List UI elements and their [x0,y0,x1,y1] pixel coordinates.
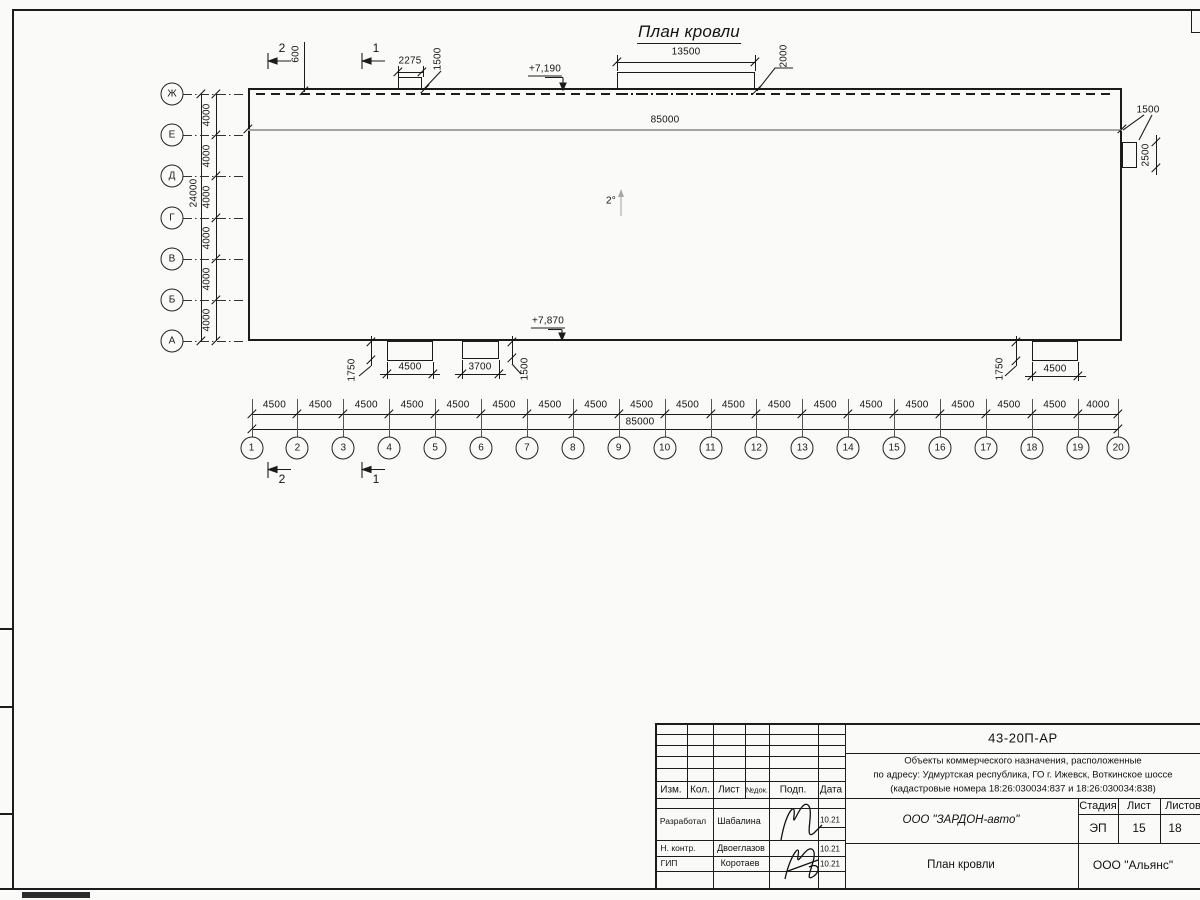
line [894,399,895,437]
row-spacing-dim: 4000 [202,185,213,208]
titleblock-name-gip: Коротаев [721,858,760,868]
titleblock-header-list: Лист [718,785,740,796]
titleblock-sheets-value: 18 [1168,821,1181,835]
line [745,723,746,798]
column-spacing-dim: 4500 [355,399,378,410]
column-axis-bubble: 12 [745,436,768,459]
column-axis-bubble: 10 [653,436,676,459]
section-mark-2-top [268,53,291,69]
column-spacing-dim: 4500 [768,399,791,410]
line [655,808,845,809]
dim-top-tab-offset: 1500 [433,47,444,70]
column-spacing-dim: 4500 [676,399,699,410]
column-spacing-dim: 4500 [492,399,515,410]
roof-tab-top-small [398,77,422,89]
column-axis-bubble: 17 [974,436,997,459]
dim-bottom-tab2-offset: 1500 [520,357,531,380]
column-spacing-dim: 4500 [538,399,561,410]
column-axis-bubble: 15 [883,436,906,459]
line [940,399,941,437]
line [1118,798,1119,843]
line [252,429,1119,430]
line [1078,399,1079,437]
inner-dimension-line-85000 [248,129,1122,131]
line [818,827,845,828]
column-axis-bubble: 16 [929,436,952,459]
column-axis-bubble: 1 [240,436,263,459]
line [252,414,1119,415]
column-axis-bubble: 3 [332,436,355,459]
building-outline [248,88,1122,341]
slope-label: 2° [606,196,616,207]
column-spacing-dim: 4500 [1043,399,1066,410]
dim-bottom-tab2-width: 3700 [468,362,491,373]
column-axis-bubble: 19 [1066,436,1089,459]
column-spacing-dim: 4500 [447,399,470,410]
dim-bottom-tab3-width: 4500 [1043,364,1066,375]
dim-bottom-total: 85000 [626,417,655,428]
row-spacing-dim: 4000 [202,268,213,291]
dim-inner-total: 85000 [651,115,680,126]
leader-bottom-tab3-offset [1005,366,1016,376]
column-spacing-dim: 4500 [722,399,745,410]
titleblock-date-gip: 10.21 [820,860,840,869]
column-axis-bubble: 5 [424,436,447,459]
titleblock-sheet-label: Лист [1127,800,1151,812]
row-axis-bubble: Б [161,288,184,311]
line [845,723,846,888]
column-spacing-dim: 4500 [584,399,607,410]
section-mark-1-top [362,53,385,69]
titleblock-role-ncontrol: Н. контр. [660,843,695,853]
dim-big-tab-offset: 2000 [779,44,790,67]
line [435,399,436,437]
line [1191,9,1192,32]
row-axis-bubble: В [161,247,184,270]
line [304,42,305,92]
titleblock-project-line3: (кадастровые номера 18:26:030034:837 и 1… [890,784,1156,795]
dim-left-total: 24000 [189,179,200,208]
line [1160,798,1161,843]
dim-bottom-tab1-offset: 1750 [347,358,358,381]
line [1118,399,1119,437]
section-cut-label-2-top: 2 [279,41,286,55]
row-axis-bubble: А [161,330,184,353]
line [655,856,845,857]
column-spacing-dim: 4500 [814,399,837,410]
roof-tab-top-large [617,72,755,89]
dim-bottom-tab1-width: 4500 [398,362,421,373]
column-axis-bubble: 4 [378,436,401,459]
titleblock-sheet-value: 15 [1132,821,1145,835]
roof-tab-bottom-1 [387,341,433,361]
scan-artifact [22,892,90,898]
column-axis-bubble: 18 [1020,436,1043,459]
row-spacing-dim: 4000 [202,227,213,250]
roof-tab-bottom-2 [462,341,499,359]
column-spacing-dim: 4000 [1086,399,1109,410]
parapet-dashed-line [756,93,1115,95]
line [1032,399,1033,437]
titleblock-date-ncontrol: 10.21 [820,845,840,854]
line [343,399,344,437]
titleblock-org: ООО "Альянс" [1093,858,1173,872]
column-axis-bubble: 7 [515,436,538,459]
column-axis-bubble: 14 [837,436,860,459]
leader-right-tab-width-b [1139,115,1152,140]
line [755,55,756,71]
column-spacing-dim: 4500 [309,399,332,410]
titleblock-role-developer: Разработал [660,816,706,826]
row-axis-bubble: Ж [161,83,184,106]
line [769,723,770,888]
column-spacing-dim: 4500 [401,399,424,410]
leader-right-tab-width-a [1123,115,1144,130]
titleblock-sheets-label: Листов [1165,800,1200,812]
line [1032,362,1033,381]
line [527,399,528,437]
section-cut-label-2-bottom: 2 [279,472,286,486]
titleblock-project-line1: Объекты коммерческого назначения, распол… [904,756,1141,767]
titleblock-project-line2: по адресу: Удмуртская республика, ГО г. … [873,770,1172,781]
roof-tab-bottom-3 [1032,341,1078,361]
level-mark-top: +7,190 [528,64,562,77]
line [655,798,845,799]
dim-right-tab-width: 1500 [1136,105,1159,116]
line [617,55,618,71]
titleblock-header-ndok: №док. [746,786,768,795]
line [619,399,620,437]
column-axis-bubble: 6 [470,436,493,459]
line [252,399,253,437]
line [389,399,390,437]
line [687,723,688,798]
line [848,399,849,437]
column-spacing-dim: 4500 [630,399,653,410]
section-cut-label-1-bottom: 1 [373,472,380,486]
parapet-dashdot-line [616,93,756,95]
titleblock-company: ООО "ЗАРДОН-авто" [903,814,1020,826]
column-spacing-dim: 4500 [906,399,929,410]
dim-right-tab-height: 2500 [1141,143,1152,166]
titleblock-header-izm: Изм. [660,785,681,796]
signature-ncontrol-gip-icon [785,849,818,879]
line [462,360,463,379]
row-axis-bubble: Д [161,165,184,188]
column-axis-bubble: 9 [607,436,630,459]
titleblock-stage-value: ЭП [1089,821,1106,835]
line [1078,814,1200,815]
line [1191,32,1200,33]
row-spacing-dim: 4000 [202,309,213,332]
line [713,723,714,888]
column-axis-bubble: 2 [286,436,309,459]
titleblock-name-ncontrol: Двоеглазов [717,843,765,853]
line [655,734,845,735]
signature-developer-icon [781,804,822,840]
line [0,628,12,630]
titleblock-role-gip: ГИП [661,858,678,868]
line [655,781,845,782]
line [12,9,1200,11]
column-axis-bubble: 11 [699,436,722,459]
titleblock-drawing-title: План кровли [927,859,995,871]
column-spacing-dim: 4500 [860,399,883,410]
titleblock-stage-label: Стадия [1079,800,1117,812]
line [802,399,803,437]
dim-roof-overhang: 600 [291,45,302,62]
row-axis-bubble: Е [161,124,184,147]
line [818,723,819,888]
line [481,399,482,437]
line [0,813,12,815]
line [655,723,1200,725]
line [655,756,845,757]
line [499,360,500,379]
leader-bottom-tab1-offset [359,366,371,376]
line [845,753,1200,754]
line [655,768,845,769]
row-spacing-dim: 4000 [202,144,213,167]
dim-bottom-tab3-offset: 1750 [995,357,1006,380]
line [0,888,1200,890]
line [1078,362,1079,381]
roof-tab-right [1122,142,1137,168]
row-spacing-dim: 4000 [202,103,213,126]
line [756,399,757,437]
line [0,706,12,708]
column-spacing-dim: 4500 [951,399,974,410]
drawing-sheet: План кровли 2 1 2 1 600 2275 1500 +7,190… [0,0,1200,900]
line [1078,798,1079,888]
line [297,399,298,437]
column-spacing-dim: 4500 [263,399,286,410]
column-axis-bubble: 20 [1107,436,1130,459]
dim-top-tab-width: 2275 [398,56,421,67]
titleblock-date-developer: 10.21 [820,816,840,825]
titleblock-header-data: Дата [820,785,842,796]
titleblock-name-developer: Шабалина [717,816,760,826]
line [711,399,712,437]
column-axis-bubble: 8 [561,436,584,459]
line [655,871,845,872]
section-cut-label-1-top: 1 [373,41,380,55]
parapet-dashed-line [256,93,616,95]
column-axis-bubble: 13 [791,436,814,459]
column-spacing-dim: 4500 [997,399,1020,410]
line [665,399,666,437]
titleblock-header-podp: Подп. [780,785,807,796]
level-mark-bottom: +7,870 [531,316,565,329]
line [655,840,845,841]
plan-title: План кровли [637,22,741,44]
line [986,399,987,437]
titleblock-doc-number: 43-20П-АР [988,731,1058,746]
row-axis-bubble: Г [161,206,184,229]
titleblock-header-kol: Кол. [690,785,710,796]
dim-big-tab-width: 13500 [672,47,701,58]
line [655,723,657,888]
line [573,399,574,437]
line [845,843,1200,844]
line [12,9,14,889]
line [616,62,756,63]
line [845,798,1200,799]
line [655,745,845,746]
